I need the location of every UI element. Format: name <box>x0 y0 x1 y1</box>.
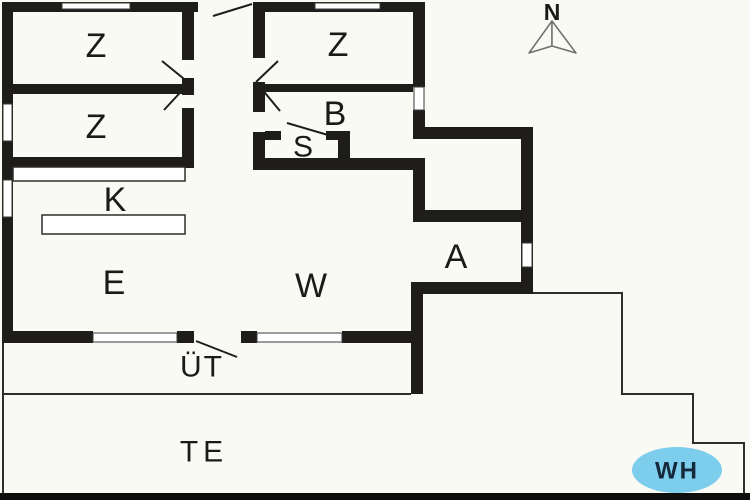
wall-east-bedroom-upper <box>413 2 425 87</box>
window-east-bedroom <box>414 87 424 110</box>
layer-outlines <box>3 293 744 493</box>
wall-east-bedroom-lower <box>413 110 425 127</box>
room-label-terrace: TE <box>180 436 228 469</box>
window-top-left <box>62 3 130 9</box>
wall-bottom-seg4 <box>342 331 423 343</box>
wall-bottom-seg3 <box>241 331 257 343</box>
layer-counters <box>13 167 185 234</box>
room-label-covered-terrace: ÜT <box>180 351 224 384</box>
compass-arrow-left-wing <box>529 21 552 53</box>
window-left-upper <box>3 104 12 141</box>
room-label-kitchen: K <box>104 181 127 219</box>
layer-wh: WH <box>632 447 722 493</box>
wall-left-bedrooms-divider <box>2 84 182 94</box>
door-swing-front-entry <box>213 4 252 16</box>
room-label-bedroom-2: Z <box>86 108 107 146</box>
wall-bath-south <box>253 158 425 170</box>
whirlpool-badge-label: WH <box>655 458 699 485</box>
window-annex <box>522 243 532 267</box>
window-bottom-left <box>93 333 177 342</box>
wall-sauna-east <box>338 131 350 158</box>
room-label-sauna: S <box>293 131 313 164</box>
window-left-lower <box>3 180 12 217</box>
floor-plan-svg: N WH ZZZBSKEWAÜTTE <box>0 0 750 500</box>
wall-annex-top <box>413 127 533 139</box>
door-swing-bedroom-right <box>256 61 278 82</box>
room-label-bathroom: B <box>324 95 347 133</box>
room-label-dining: E <box>103 264 126 302</box>
floor-plan-canvas: N WH ZZZBSKEWAÜTTE <box>0 0 750 500</box>
wall-hall-west-b <box>182 78 194 95</box>
compass-arrow-right-wing <box>552 21 576 53</box>
wall-annex-south <box>411 282 533 294</box>
room-label-bedroom-3: Z <box>328 26 349 64</box>
wall-hall-west-a <box>182 12 194 60</box>
wall-annex-inner <box>413 210 525 222</box>
wall-zb-divider <box>265 84 413 92</box>
wall-hall-west-c <box>182 108 194 168</box>
wall-bottom-seg1 <box>2 331 93 343</box>
layer-bottom-bar <box>0 493 750 500</box>
wall-hall-east-a <box>253 12 265 58</box>
room-label-bedroom-1: Z <box>86 27 107 65</box>
image-bottom-bar <box>0 493 750 500</box>
window-top-right <box>315 3 380 9</box>
layer-compass: N <box>529 0 576 53</box>
window-bottom-right <box>257 333 342 342</box>
wall-left <box>2 2 13 343</box>
kitchen-counter-upper <box>13 167 185 181</box>
wall-terrace-east <box>411 282 423 394</box>
door-swing-bedroom-left-upper <box>162 61 189 83</box>
wall-hall-east-c <box>253 132 265 170</box>
room-label-living: W <box>295 267 327 305</box>
wall-bottom-seg2 <box>177 331 194 343</box>
wall-sauna-north-a <box>265 131 281 140</box>
room-label-annex: A <box>445 238 468 276</box>
